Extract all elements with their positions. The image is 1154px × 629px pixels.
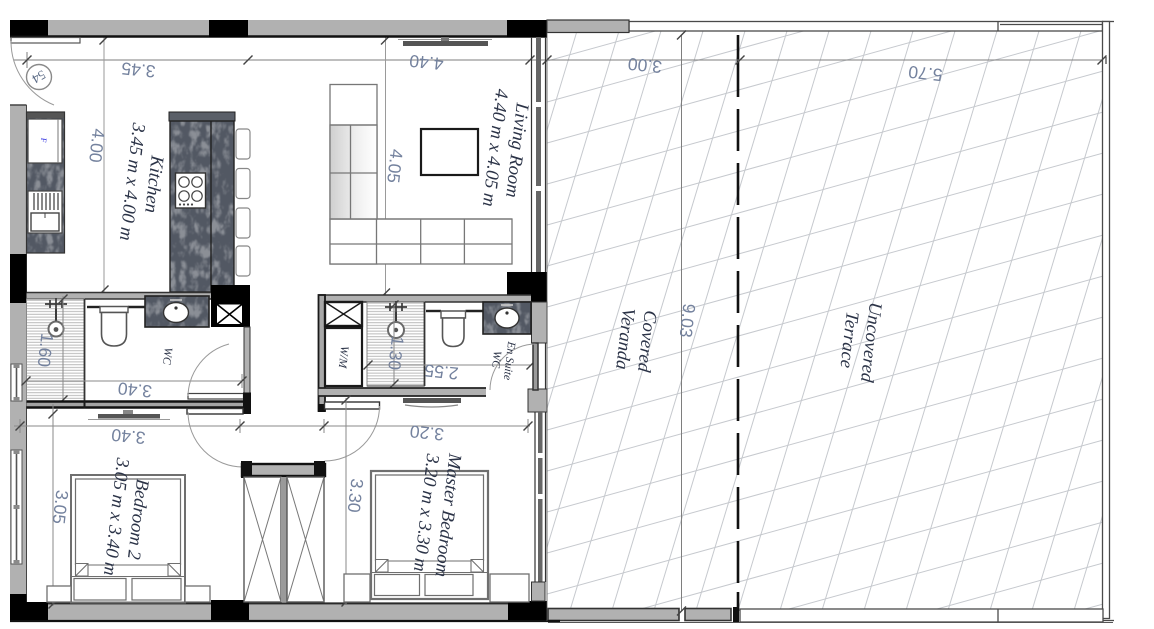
svg-text:4.40: 4.40 <box>408 51 444 74</box>
svg-text:3.40: 3.40 <box>110 425 146 448</box>
svg-text:4.00: 4.00 <box>85 128 109 164</box>
svg-text:9.03: 9.03 <box>676 303 700 339</box>
svg-text:4.05: 4.05 <box>383 148 407 184</box>
svg-text:3.30: 3.30 <box>344 478 368 514</box>
svg-text:3.45: 3.45 <box>120 58 156 81</box>
svg-text:3.20: 3.20 <box>409 421 445 444</box>
svg-text:2.55: 2.55 <box>423 360 459 383</box>
svg-text:1.60: 1.60 <box>34 332 58 368</box>
svg-text:3.40: 3.40 <box>117 378 153 401</box>
svg-text:1.30: 1.30 <box>384 335 408 371</box>
svg-text:WC: WC <box>160 347 174 366</box>
svg-text:3.05: 3.05 <box>49 489 73 525</box>
svg-text:5.70: 5.70 <box>907 62 943 85</box>
svg-text:3.00: 3.00 <box>627 54 663 77</box>
svg-text:WC: WC <box>489 350 503 369</box>
